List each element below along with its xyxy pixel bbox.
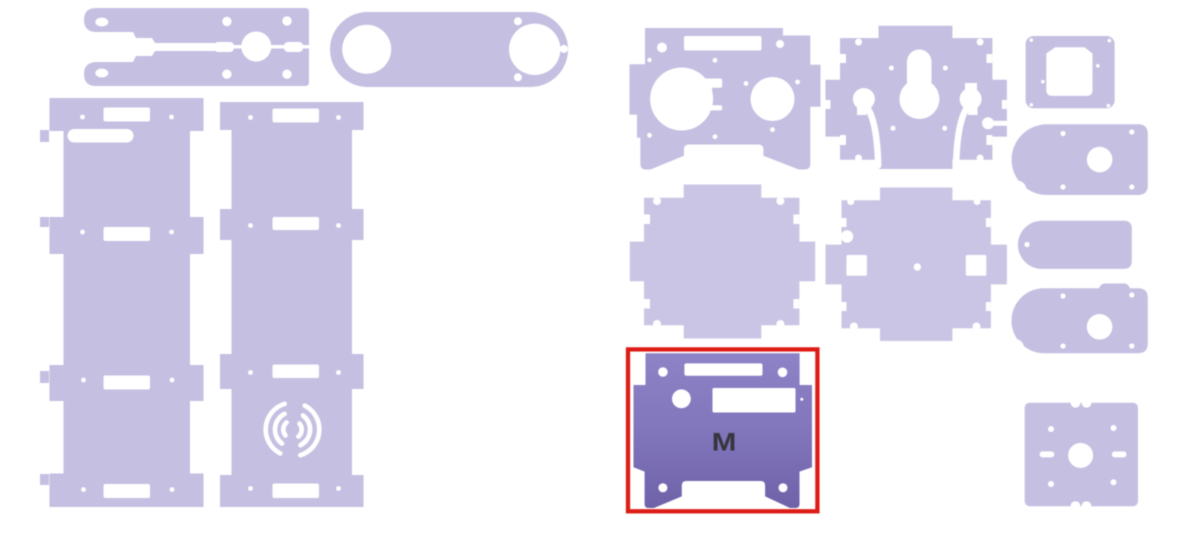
- svg-text:M: M: [712, 427, 737, 455]
